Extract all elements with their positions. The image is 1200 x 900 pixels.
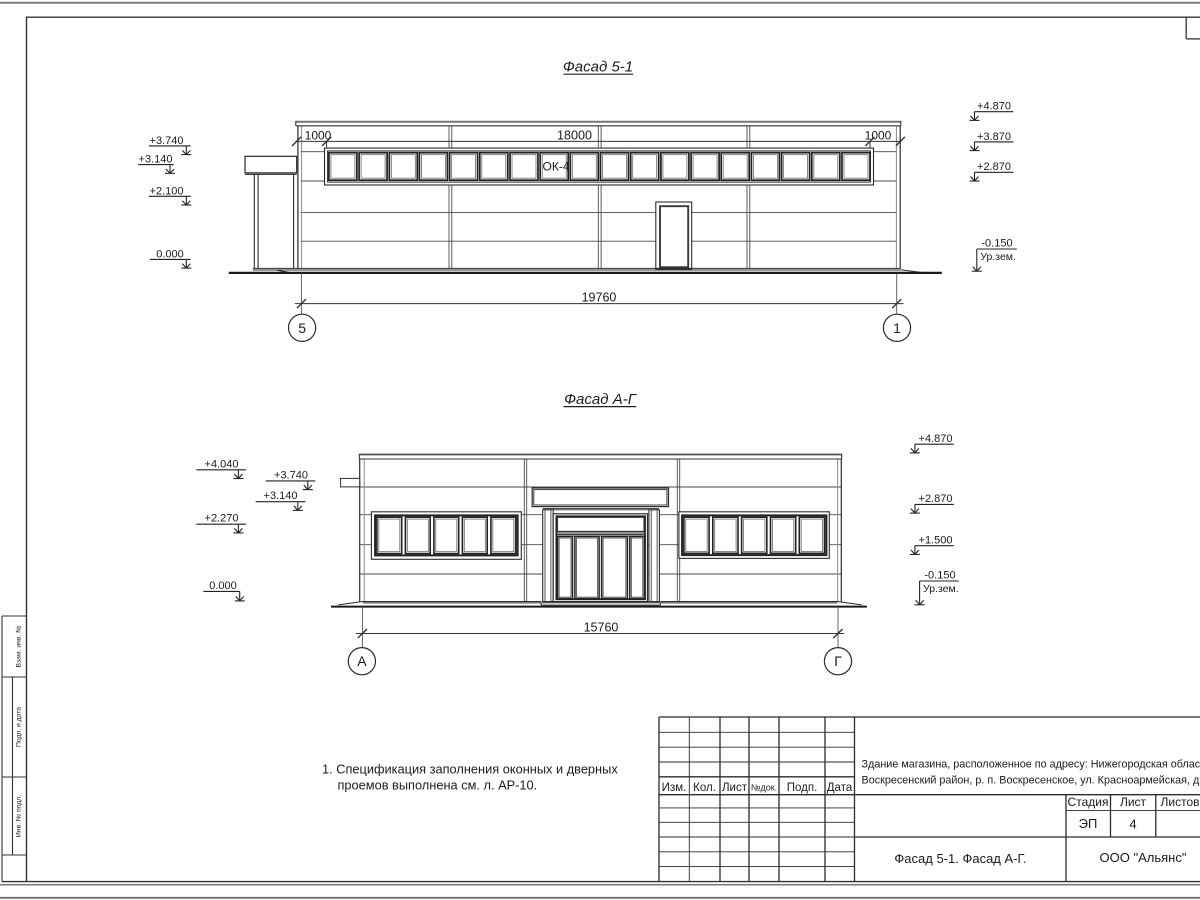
svg-text:ООО "Альянс": ООО "Альянс" [1100,850,1187,865]
svg-text:Инв. № подл.: Инв. № подл. [16,795,23,837]
svg-text:Подп.: Подп. [787,782,818,794]
svg-text:+2.100: +2.100 [150,185,184,197]
svg-text:Здание магазина, расположенное: Здание магазина, расположенное по адресу… [862,758,1200,770]
svg-text:0.000: 0.000 [209,580,237,592]
svg-text:+3.740: +3.740 [150,135,184,147]
svg-text:+3.870: +3.870 [977,131,1011,143]
svg-text:0.000: 0.000 [156,248,184,260]
svg-text:Дата: Дата [827,782,853,794]
svg-text:Фасад А-Г: Фасад А-Г [564,391,638,408]
svg-text:Подп. и дата: Подп. и дата [16,707,23,747]
svg-text:5: 5 [298,320,306,336]
svg-text:+4.870: +4.870 [977,101,1011,113]
svg-text:18000: 18000 [557,128,592,142]
svg-text:1: 1 [893,320,901,336]
svg-text:19760: 19760 [582,290,617,304]
svg-text:+4.870: +4.870 [919,433,953,445]
svg-text:Кол.: Кол. [693,782,716,794]
svg-text:Г: Г [834,653,842,669]
svg-text:ОК-4: ОК-4 [543,160,570,174]
svg-text:Ур.зем.: Ур.зем. [923,583,959,595]
svg-text:+2.870: +2.870 [919,493,953,505]
svg-text:-0.150: -0.150 [981,238,1012,250]
svg-text:+1.500: +1.500 [919,534,953,546]
svg-text:+3.140: +3.140 [139,154,173,166]
svg-text:Ур.зем.: Ур.зем. [980,251,1016,263]
svg-text:№док.: №док. [751,782,777,792]
svg-text:Лист: Лист [1120,795,1147,809]
svg-text:Фасад 5-1. Фасад А-Г.: Фасад 5-1. Фасад А-Г. [894,851,1026,866]
svg-text:+2.270: +2.270 [205,513,239,525]
svg-text:1000: 1000 [865,128,892,142]
svg-text:ЭП: ЭП [1079,816,1098,831]
svg-text:Взам. инв. №: Взам. инв. № [16,625,23,667]
svg-text:А: А [357,653,367,669]
svg-text:+2.870: +2.870 [977,161,1011,173]
svg-text:4: 4 [1129,817,1136,832]
svg-text:-0.150: -0.150 [924,569,955,581]
svg-text:Лист: Лист [722,782,748,794]
svg-text:1. Спецификация заполнения око: 1. Спецификация заполнения оконных и две… [322,761,618,776]
svg-text:1000: 1000 [305,128,332,142]
svg-text:проемов выполнена см. л. АР-10: проемов выполнена см. л. АР-10. [338,778,538,793]
svg-text:+3.140: +3.140 [264,490,298,502]
svg-text:Стадия: Стадия [1068,795,1109,809]
svg-text:Фасад 5-1: Фасад 5-1 [563,59,633,76]
svg-text:+3.740: +3.740 [274,469,308,481]
svg-text:Изм.: Изм. [662,782,687,794]
svg-text:Воскресенский район, р. п. Вос: Воскресенский район, р. п. Воскресенское… [862,774,1200,786]
svg-text:15760: 15760 [584,620,619,634]
svg-text:Листов: Листов [1161,795,1200,809]
svg-text:+4.040: +4.040 [205,458,239,470]
